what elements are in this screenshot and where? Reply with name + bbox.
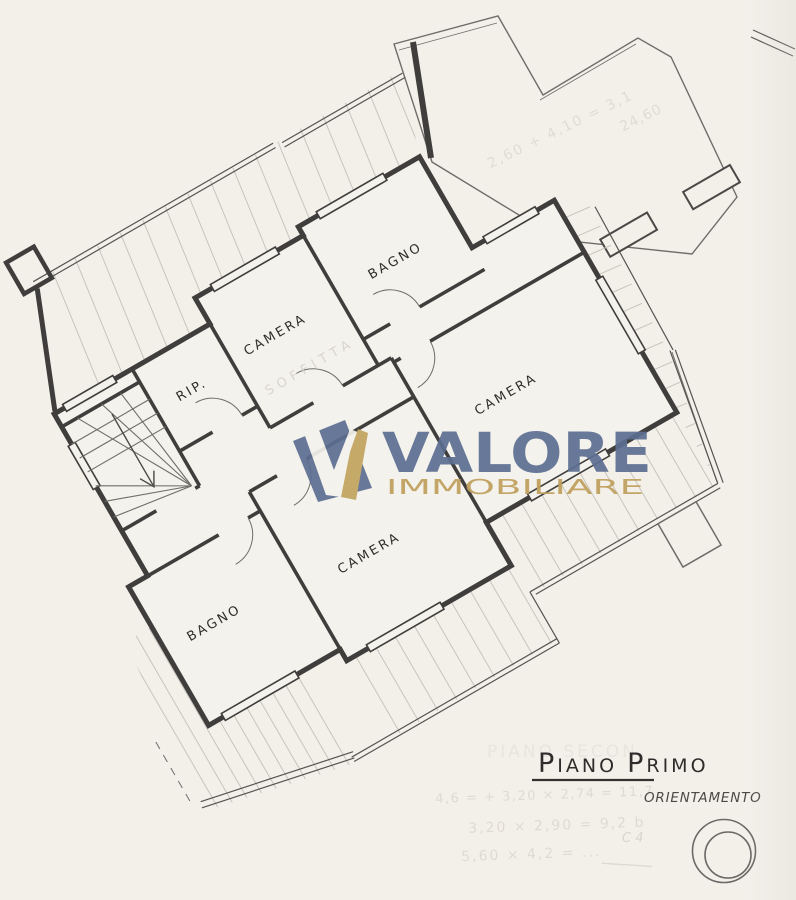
watermark-subtitle: IMMOBILIARE [386, 475, 644, 499]
orientation-label: ORIENTAMENTO [644, 790, 762, 806]
scanned-floor-plan-page: 2,60 + 4,10 = 3,1 24,60 [0, 0, 796, 900]
floor-plan-drawing: 2,60 + 4,10 = 3,1 24,60 [0, 0, 796, 900]
scan-edge-shading [746, 0, 796, 900]
valore-watermark: VALORE IMMOBILIARE [293, 420, 652, 502]
compass-side-ghost: C 4 [622, 831, 643, 846]
